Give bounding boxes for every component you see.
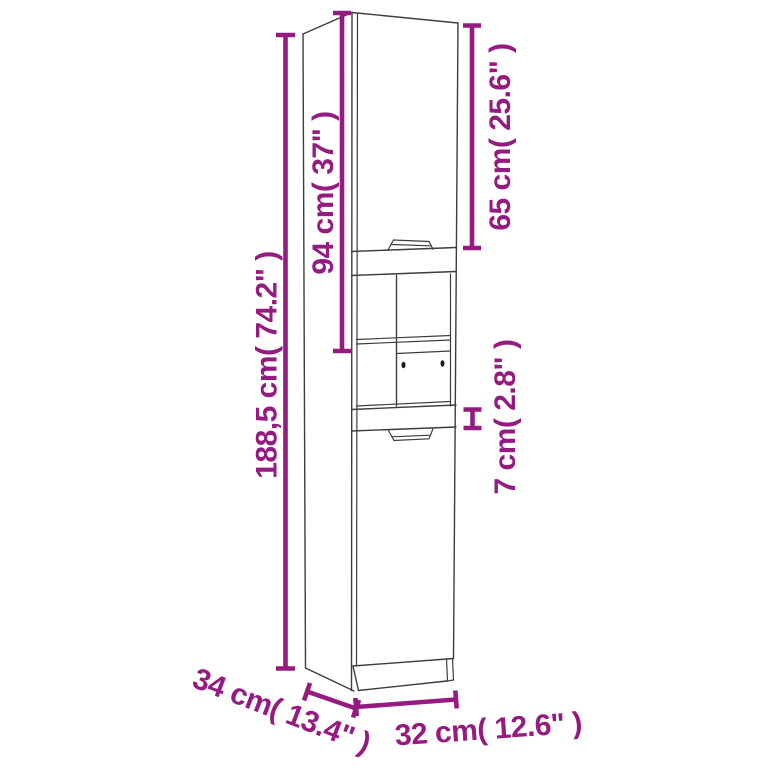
front-right-edge xyxy=(454,23,459,659)
dimension-upper-door-height: 65 cm( 25.6" ) xyxy=(463,26,517,249)
dimension-middle-rail-height: 7 cm( 2.8" ) xyxy=(464,340,523,495)
shelf-front-edge-bottom xyxy=(357,340,451,344)
upper-door-bottom-edge xyxy=(352,248,457,252)
side-top-edge xyxy=(303,13,352,35)
dimension-tick-left xyxy=(304,683,310,701)
lower-door-top-edge xyxy=(352,427,457,431)
cabinet-plinth xyxy=(353,659,454,691)
cabinet-upper-door xyxy=(352,240,457,252)
dimension-line xyxy=(356,700,456,708)
lower-door-handle-inner-line xyxy=(392,435,430,437)
depth-label: 34 cm( 13.4" ) xyxy=(188,662,375,760)
right-foot-bottom-edge xyxy=(448,680,454,681)
dimension-tick-right xyxy=(455,691,456,709)
shelf-front-edge-top xyxy=(357,336,451,340)
overall-height-label: 188,5 cm( 74.2" ) xyxy=(251,251,284,479)
product-dimension-image: 188,5 cm( 74.2" ) 94 cm( 37" ) 65 cm( 25… xyxy=(0,0,767,767)
dimension-depth: 34 cm( 13.4" ) xyxy=(188,662,375,760)
dimension-annotations: 188,5 cm( 74.2" ) 94 cm( 37" ) 65 cm( 25… xyxy=(188,13,583,760)
side-bottom-edge xyxy=(306,668,355,691)
lower-door-bottom-edge xyxy=(353,659,454,667)
dimension-overall-height: 188,5 cm( 74.2" ) xyxy=(251,35,296,669)
plinth-left-edge xyxy=(353,666,359,691)
cabinet-lower-door xyxy=(352,427,457,666)
upper-door-height-label: 65 cm( 25.6" ) xyxy=(484,43,517,230)
lower-door-handle xyxy=(389,429,434,441)
back-panel-top-edge xyxy=(397,351,451,354)
mounting-hole-right xyxy=(441,360,445,366)
front-left-outer-edge xyxy=(352,13,353,691)
right-foot-right-edge xyxy=(453,659,454,681)
upper-section-height-label: 94 cm( 37" ) xyxy=(307,111,340,274)
right-foot-left-edge xyxy=(447,660,448,682)
cabinet-open-shelf-unit xyxy=(352,274,457,410)
front-top-edge xyxy=(352,13,458,24)
top-rail-bottom-edge xyxy=(352,272,457,276)
middle-rail-height-label: 7 cm( 2.8" ) xyxy=(489,340,522,495)
side-back-edge xyxy=(303,34,306,668)
upper-door-handle-inner-line xyxy=(392,245,431,246)
plinth-bottom-edge xyxy=(359,681,448,691)
dimension-tick-left xyxy=(355,698,356,716)
dimension-upper-section-height: 94 cm( 37" ) xyxy=(307,13,351,351)
cabinet-dimension-diagram: 188,5 cm( 74.2" ) 94 cm( 37" ) 65 cm( 25… xyxy=(0,0,767,767)
width-label: 32 cm( 12.6" ) xyxy=(394,707,583,753)
dimension-width: 32 cm( 12.6" ) xyxy=(355,691,583,753)
mounting-hole-left xyxy=(402,362,406,368)
